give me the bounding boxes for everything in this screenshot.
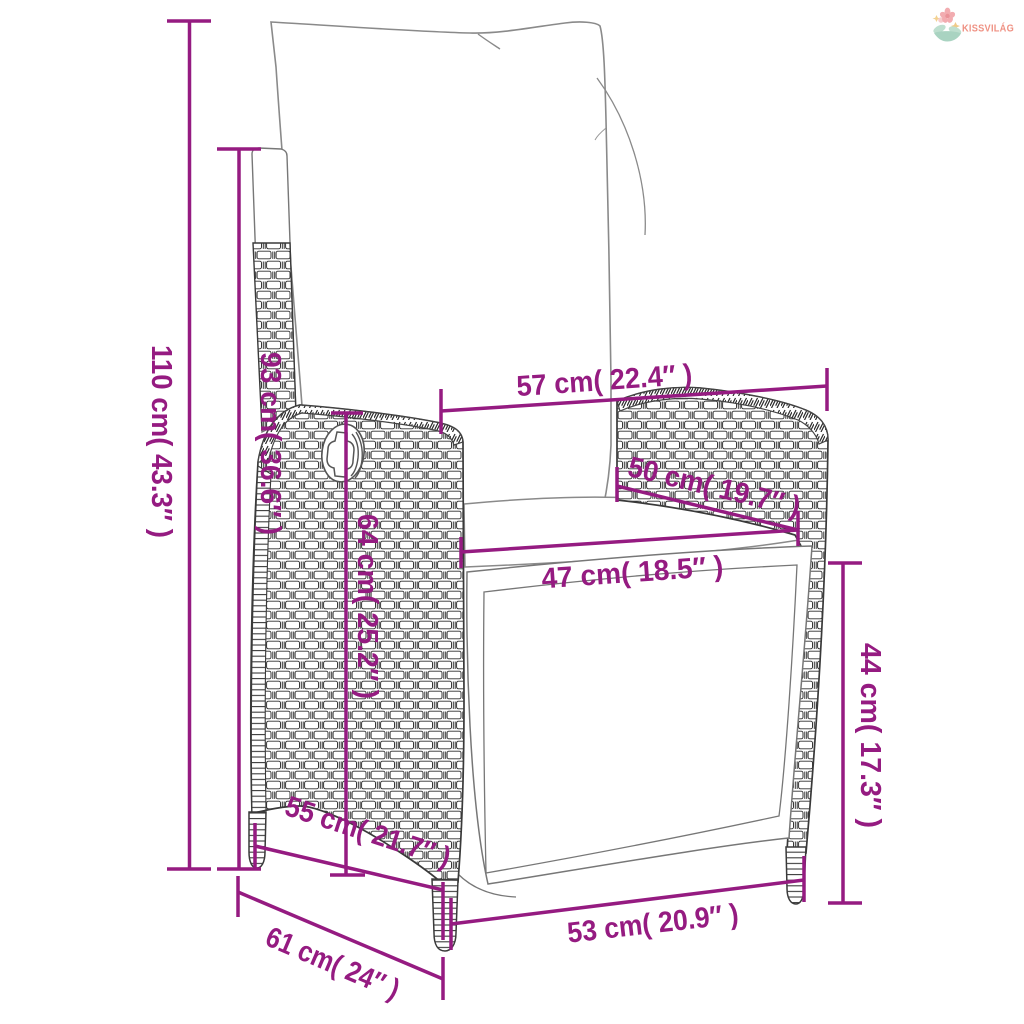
svg-text:KISSVILÁG: KISSVILÁG — [962, 22, 1014, 35]
svg-text:44 cm( 17.3″ ): 44 cm( 17.3″ ) — [854, 643, 886, 828]
svg-text:110 cm( 43.3″ ): 110 cm( 43.3″ ) — [145, 345, 177, 538]
svg-text:64 cm( 25.2″ ): 64 cm( 25.2″ ) — [351, 514, 383, 699]
svg-text:93 cm( 36.6″ ): 93 cm( 36.6″ ) — [254, 352, 286, 535]
